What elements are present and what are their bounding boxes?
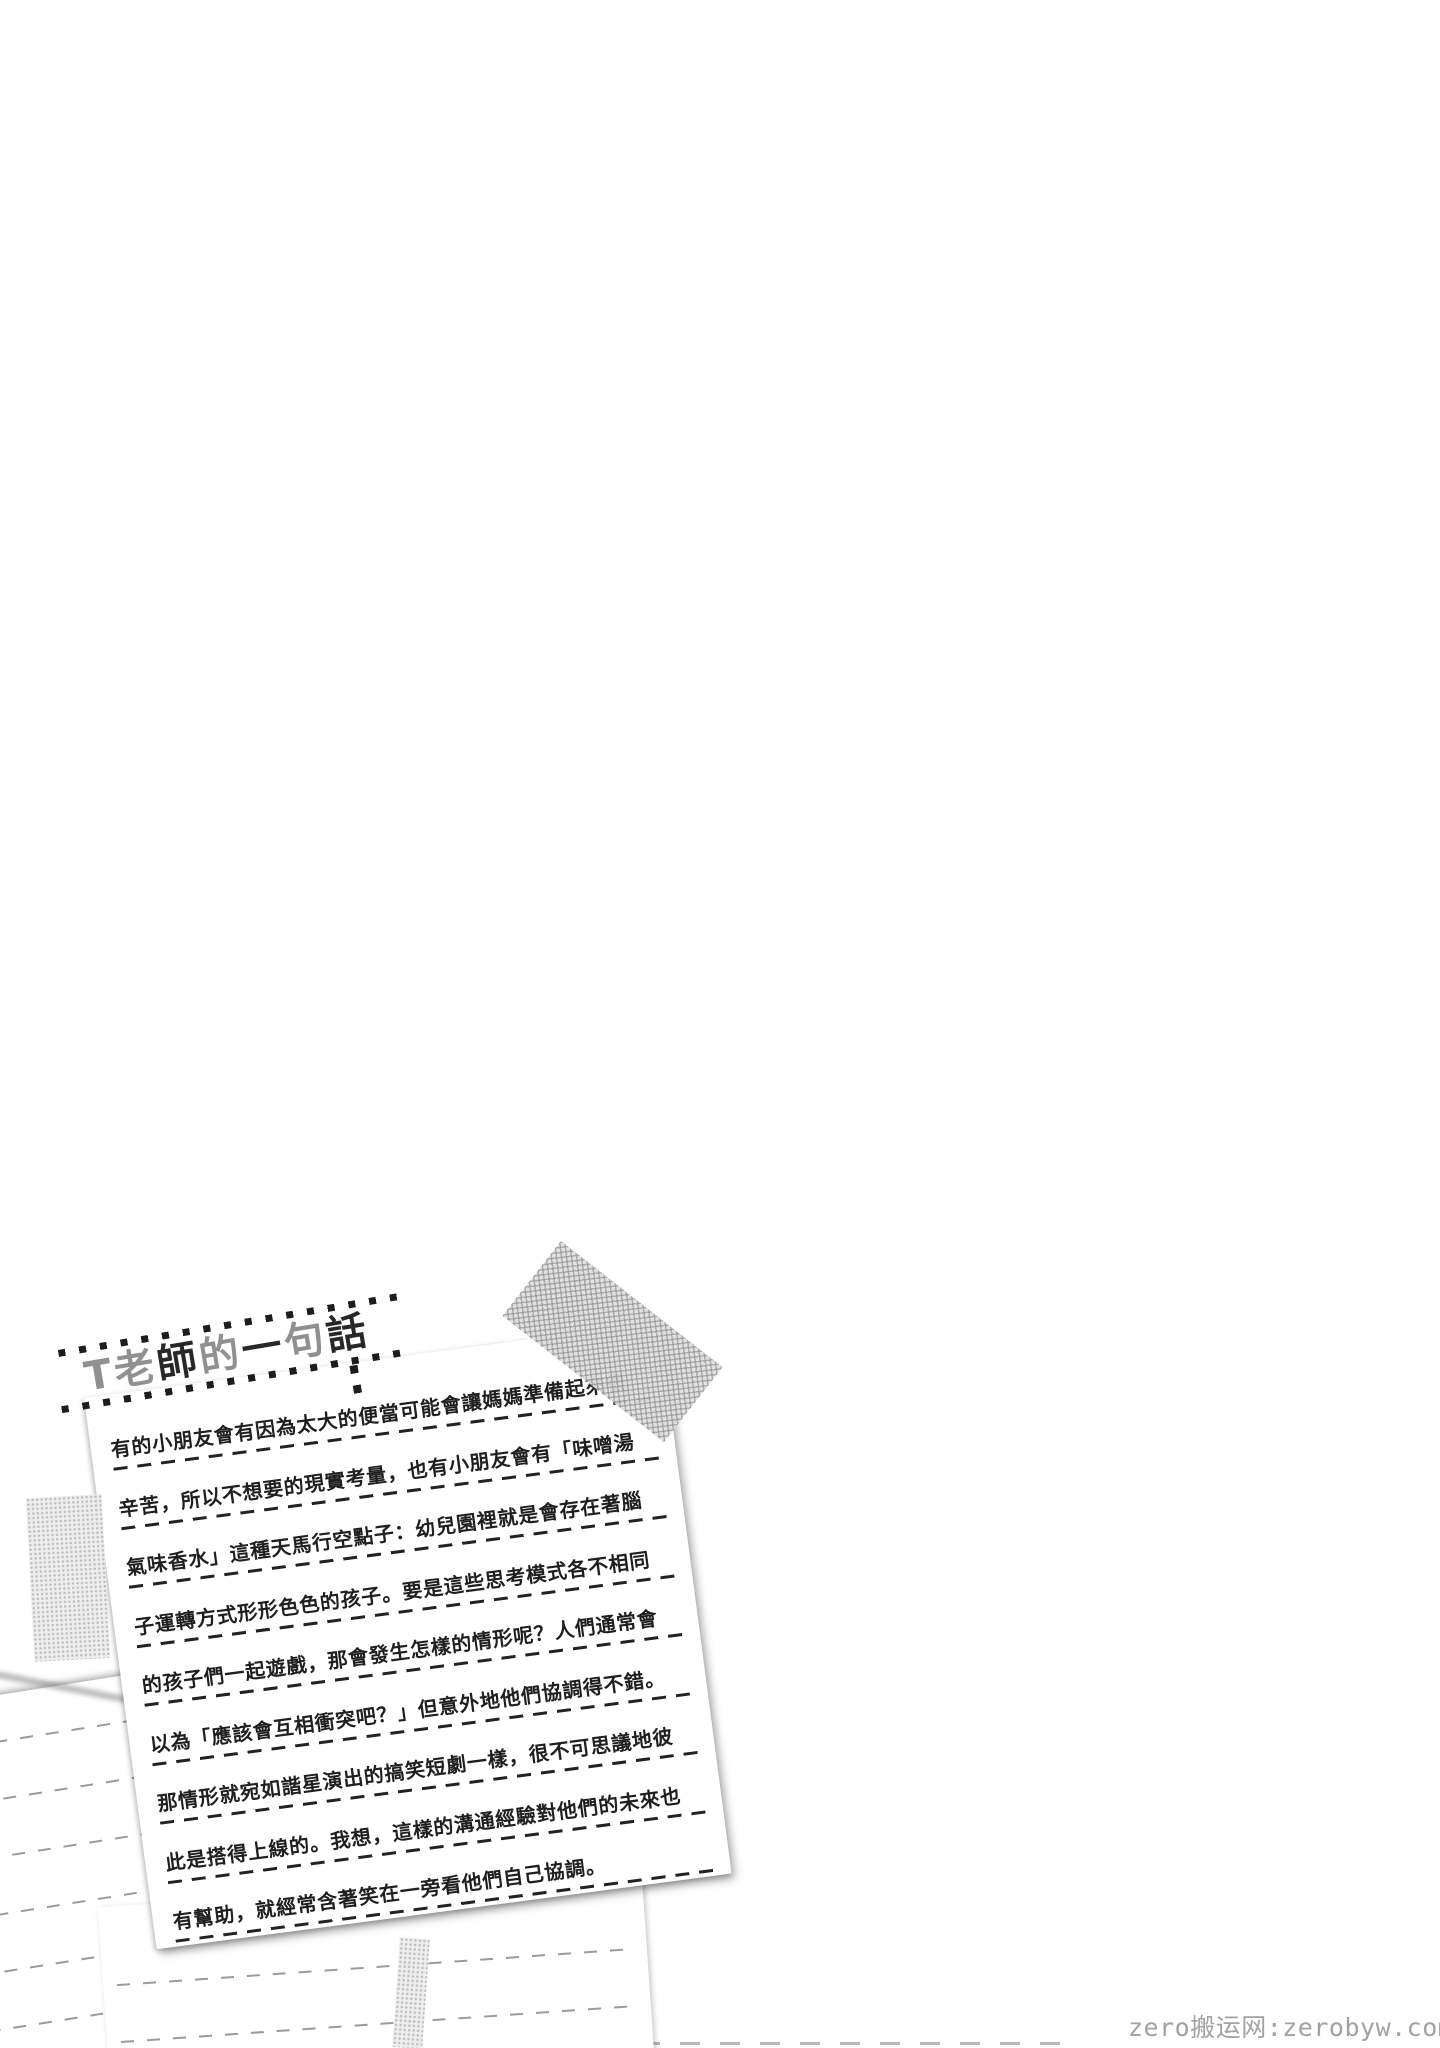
watermark: zero搬运网:zerobyw.com xyxy=(1128,2008,1440,2044)
left-tape-strip xyxy=(26,1494,110,1662)
scanned-book-page: 有的小朋友會有因為太大的便當可能會讓媽媽準備起來很 辛苦，所以不想要的現實考量，… xyxy=(0,0,1440,2048)
ruled-dashed-line xyxy=(121,2005,637,2043)
title-char: 話 xyxy=(323,1308,373,1360)
